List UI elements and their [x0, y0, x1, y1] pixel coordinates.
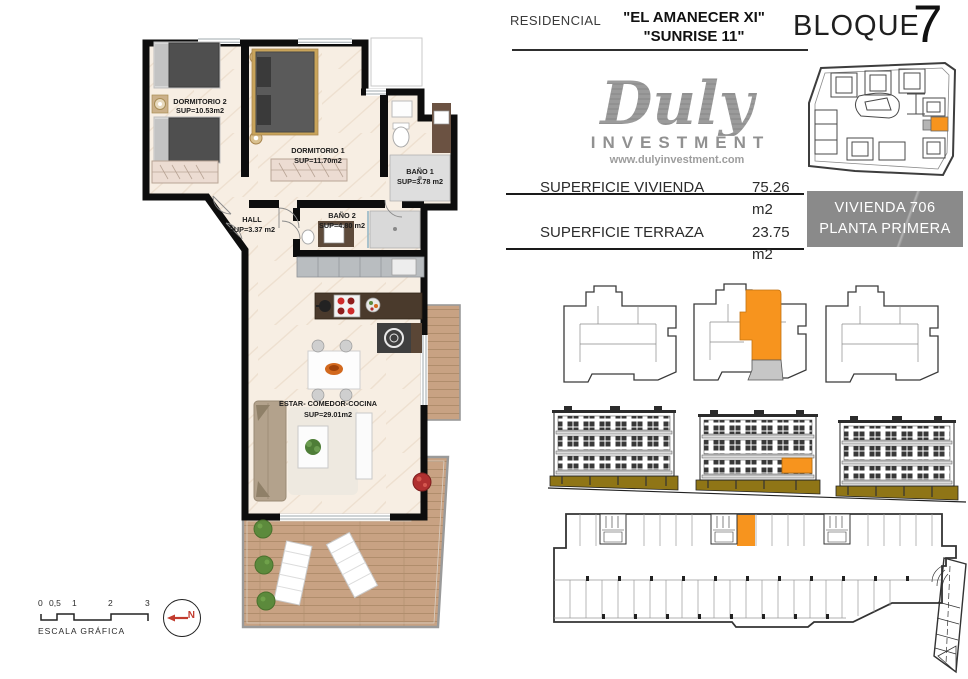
residence-name-line1: "EL AMANECER XI" [610, 8, 778, 27]
svg-text:Duly: Duly [598, 70, 757, 136]
bloque-label: BLOQUE [793, 10, 920, 43]
unit-floor: PLANTA PRIMERA [819, 219, 951, 240]
floor-plan-drawing: DORMITORIO 2 SUP=10.53m2 DORMITORIO 1 SU… [130, 5, 470, 635]
elevation-highlighted-unit [782, 458, 812, 473]
room-label-bano1: BAÑO 1 [406, 167, 434, 176]
residence-name-line2: "SUNRISE 11" [610, 27, 778, 46]
room-label-estar: ESTAR- COMEDOR-COCINA [279, 399, 378, 408]
scale-caption: ESCALA GRÁFICA [38, 626, 125, 636]
surface-value: 23.75 m2 [752, 222, 804, 266]
elevation-highlighted-block [696, 410, 820, 494]
room-label-bano2: BAÑO 2 [328, 211, 356, 220]
surface-label: SUPERFICIE TERRAZA [506, 222, 752, 266]
site-plan-drawing [795, 58, 965, 185]
logo-script-icon: Duly [572, 70, 782, 136]
exterior-notch [369, 31, 425, 89]
site-plan-highlighted-unit [931, 117, 948, 131]
room-sup-hall: SUP=3.37 m2 [229, 225, 275, 234]
scale-tick: 2 [108, 598, 113, 608]
parking-highlighted-space [737, 515, 755, 546]
key-plan-highlighted-terrace [748, 360, 783, 380]
north-label: N [188, 610, 195, 621]
north-arrow-icon [167, 612, 189, 624]
logo-subtitle: INVESTMENT [572, 133, 782, 153]
balcony [424, 305, 460, 420]
surface-value: 75.26 m2 [752, 177, 804, 221]
elevations-drawing [548, 400, 966, 503]
parking-plan-drawing [546, 506, 968, 676]
scale-tick: 0,5 [49, 598, 61, 608]
key-plan-highlighted-block [694, 284, 806, 380]
surface-row-terraza: SUPERFICIE TERRAZA 23.75 m2 [506, 222, 804, 266]
logo-website: www.dulyinvestment.com [572, 154, 782, 166]
residencial-label: RESIDENCIAL [510, 13, 601, 28]
room-label-dormitorio2: DORMITORIO 2 [173, 97, 226, 106]
site-plan-terrace-grey [923, 120, 931, 130]
unit-identifier-box: VIVIENDA 706 PLANTA PRIMERA [807, 191, 963, 247]
room-sup-dormitorio2: SUP=10.53m2 [176, 106, 224, 115]
scale-tick: 1 [72, 598, 77, 608]
plan-sheet: RESIDENCIAL "EL AMANECER XI" "SUNRISE 11… [0, 0, 968, 679]
room-sup-dormitorio1: SUP=11.70m2 [294, 156, 342, 165]
surface-label: SUPERFICIE VIVIENDA [506, 177, 752, 221]
key-plans-drawing [556, 280, 942, 392]
scale-bar-icon [36, 611, 161, 623]
surface-table: SUPERFICIE VIVIENDA 75.26 m2 SUPERFICIE … [506, 193, 804, 250]
room-label-hall: HALL [242, 215, 262, 224]
graphic-scale: 0 0,5 1 2 3 ESCALA GRÁFICA [36, 598, 166, 644]
room-sup-bano2: SUP=4.80 m2 [319, 221, 365, 230]
north-arrow: N [163, 599, 201, 637]
bloque-number: 7 [913, 0, 942, 55]
unit-number: VIVIENDA 706 [834, 198, 935, 219]
scale-tick: 0 [38, 598, 43, 608]
room-label-dormitorio1: DORMITORIO 1 [291, 146, 344, 155]
company-logo: Duly INVESTMENT www.dulyinvestment.com [572, 70, 782, 166]
surface-row-vivienda: SUPERFICIE VIVIENDA 75.26 m2 [506, 177, 804, 221]
room-sup-bano1: SUP=3.78 m2 [397, 177, 443, 186]
residence-name: "EL AMANECER XI" "SUNRISE 11" [610, 8, 778, 46]
header-rule [512, 49, 808, 51]
room-sup-estar: SUP=29.01m2 [304, 410, 352, 419]
scale-tick: 3 [145, 598, 150, 608]
